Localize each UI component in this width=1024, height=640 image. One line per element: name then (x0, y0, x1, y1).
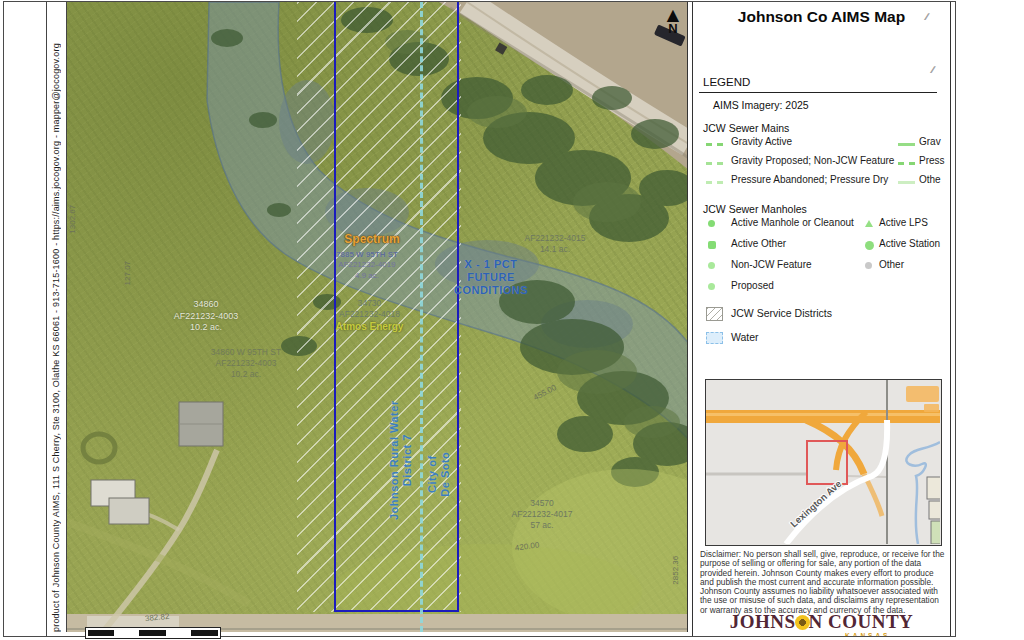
sewer-main-line (420, 2, 423, 632)
legend-row: Active Manhole or Cleanout Active LPS (693, 215, 951, 236)
map-canvas[interactable]: 34860 AF221232-4003 10.2 ac. 34860 W 95T… (66, 2, 688, 632)
sunflower-icon (795, 615, 810, 630)
non-jcw-dot-icon (708, 262, 715, 269)
buildings (91, 402, 223, 524)
water-swatch-icon (706, 332, 723, 344)
aims-map-sheet: product of Johnson County AIMS, 111 S Ch… (0, 0, 1024, 640)
line-swatch-icon (898, 143, 915, 146)
legend-row: Gravity Proposed; Non-JCW Feature Press (693, 153, 951, 172)
other-dot-icon (865, 262, 872, 269)
inset-art: Lexington Ave (706, 380, 940, 544)
attribution-text: product of Johnson County AIMS, 111 S Ch… (51, 2, 61, 632)
scale-bar (85, 627, 221, 639)
highway (706, 410, 940, 423)
legend-row: Proposed (693, 278, 951, 299)
active-lps-triangle-icon (865, 220, 873, 227)
legend-heading: LEGEND (703, 76, 750, 88)
north-arrow-icon: ▲N (659, 4, 687, 35)
active-manhole-dot-icon (708, 220, 715, 227)
johnson-county-logo: JOHNSN COUNTY (693, 611, 950, 633)
manholes-rows: Active Manhole or Cleanout Active LPS Ac… (693, 215, 951, 299)
line-swatch-icon (898, 162, 915, 165)
parcel-boundary (334, 2, 459, 612)
imagery-label: AIMS Imagery: 2025 (713, 99, 809, 111)
logo-kansas-label: KANSAS (845, 632, 890, 636)
legend-panel: Johnson Co AIMS Map ∕∕ ∕∕ LEGEND AIMS Im… (692, 2, 951, 636)
disclaimer-text: Disclaimer: No person shall sell, give, … (700, 550, 945, 615)
pressure-abandoned-line-icon (706, 181, 723, 184)
legend-row: Gravity Active Grav (693, 134, 951, 153)
sewer-mains-title: JCW Sewer Mains (703, 122, 789, 134)
attribution-strip: product of Johnson County AIMS, 111 S Ch… (46, 2, 66, 636)
resize-handle-icon[interactable]: ∕∕ (926, 11, 927, 22)
hatch-swatch-icon (706, 307, 723, 321)
page-title: Johnson Co AIMS Map (693, 8, 950, 26)
pond-ring (83, 434, 115, 462)
water-row: Water (693, 329, 951, 347)
sewer-mains-rows: Gravity Active Grav Gravity Proposed; No… (693, 134, 951, 191)
line-swatch-icon (898, 181, 915, 184)
active-other-square-icon (708, 241, 716, 249)
legend-rule (699, 92, 937, 93)
legend-row: Non-JCW Feature Other (693, 257, 951, 278)
legend-row: Pressure Abandoned; Pressure Dry Othe (693, 172, 951, 191)
active-station-dot-icon (865, 241, 874, 250)
inset-locator-map: Lexington Ave (705, 379, 942, 546)
resize-handle-icon[interactable]: ∕∕ (932, 64, 933, 75)
gravity-active-line-icon (706, 143, 723, 146)
legend-row: Active Other Active Station (693, 236, 951, 257)
service-districts-row: JCW Service Districts (693, 305, 951, 323)
proposed-dot-icon (708, 283, 715, 290)
gravity-proposed-line-icon (706, 162, 723, 165)
manholes-title: JCW Sewer Manholes (703, 203, 807, 215)
